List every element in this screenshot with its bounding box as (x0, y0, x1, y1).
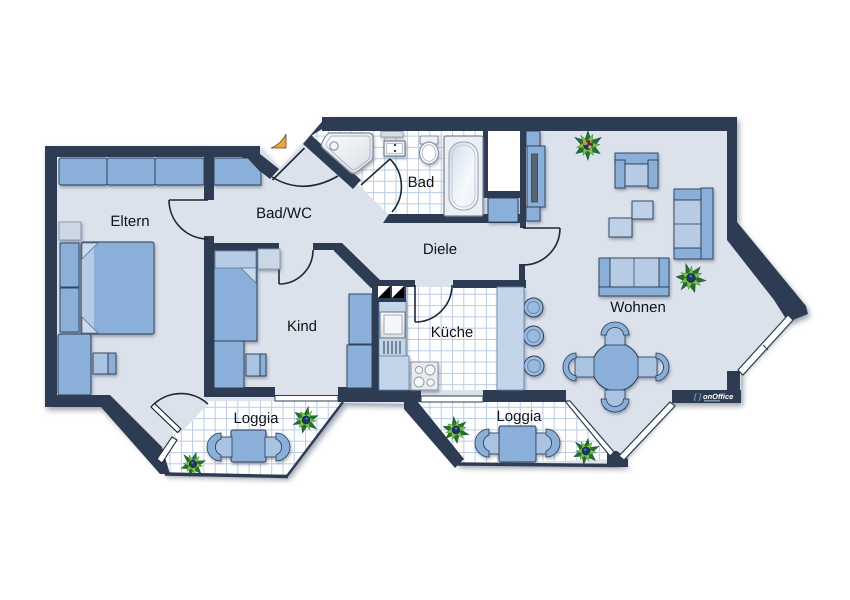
svg-text:Kind: Kind (287, 318, 317, 335)
svg-text:Loggia: Loggia (233, 410, 279, 427)
svg-text:Loggia: Loggia (496, 408, 542, 425)
svg-text:[ ]: [ ] (693, 392, 702, 401)
svg-text:Wohnen: Wohnen (610, 299, 666, 316)
svg-text:onOffice: onOffice (703, 392, 733, 401)
svg-text:Bad/WC: Bad/WC (256, 205, 312, 222)
svg-text:Eltern: Eltern (110, 213, 149, 230)
svg-text:Bad: Bad (408, 174, 435, 191)
svg-text:Küche: Küche (431, 324, 474, 341)
svg-text:Diele: Diele (423, 241, 457, 258)
